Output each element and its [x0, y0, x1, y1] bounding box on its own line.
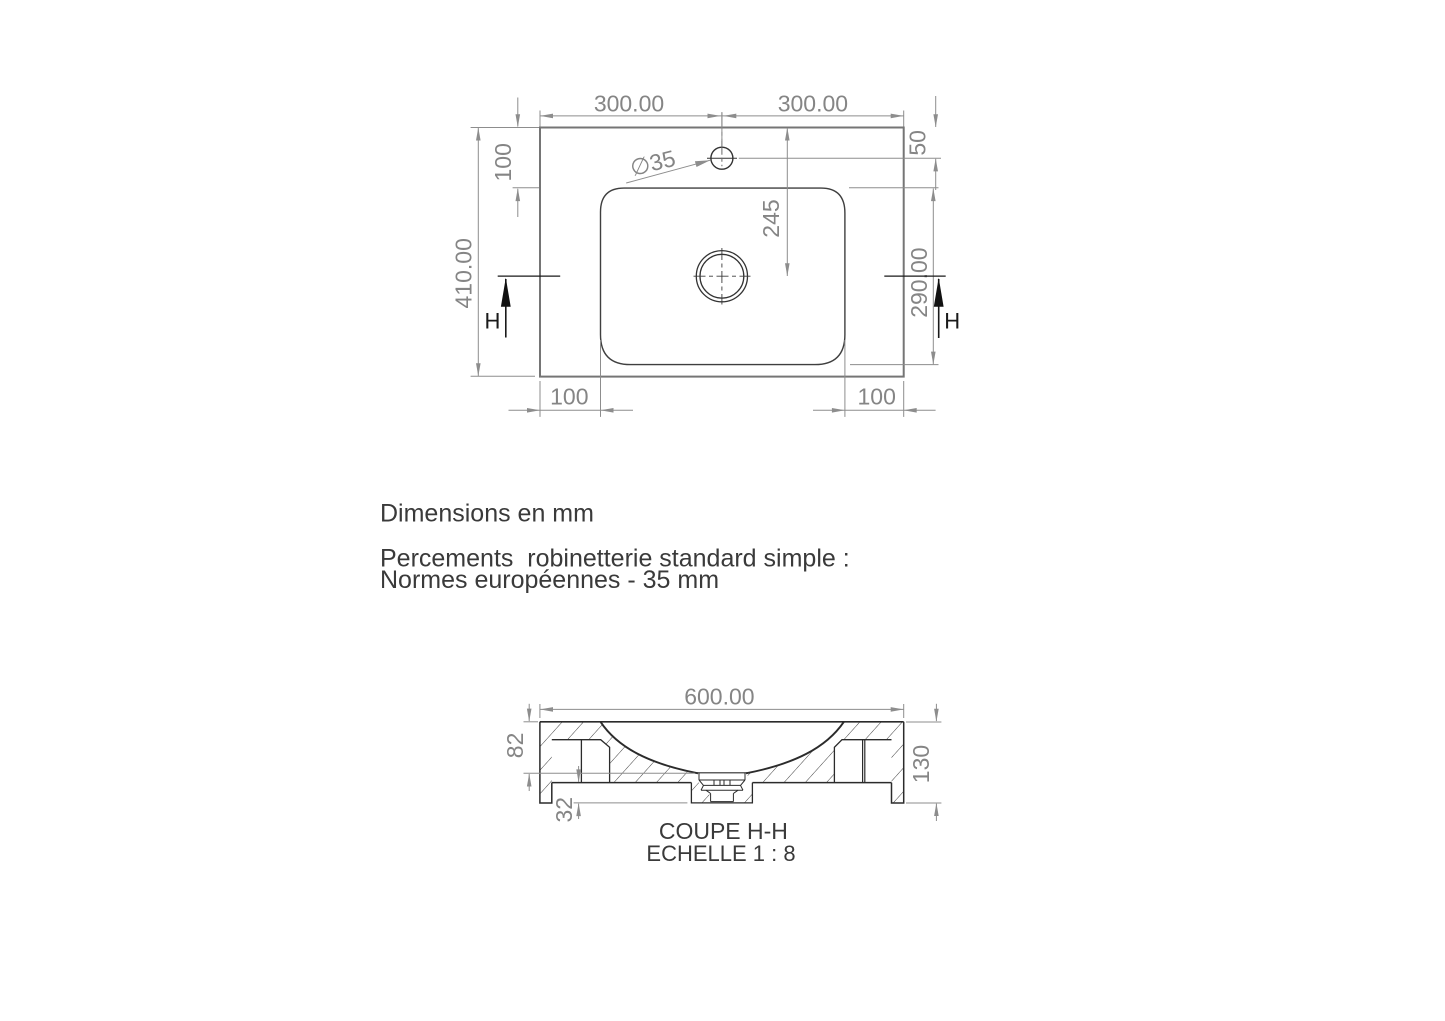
- svg-text:245: 245: [758, 199, 784, 237]
- svg-text:100: 100: [550, 384, 588, 410]
- svg-text:130: 130: [908, 745, 934, 783]
- svg-text:H: H: [944, 309, 960, 334]
- svg-text:Dimensions en mm: Dimensions en mm: [380, 500, 594, 528]
- svg-text:ECHELLE 1 : 8: ECHELLE 1 : 8: [646, 841, 795, 866]
- svg-text:300.00: 300.00: [778, 91, 848, 117]
- svg-text:∅35: ∅35: [627, 145, 678, 181]
- svg-text:50: 50: [904, 130, 930, 156]
- svg-text:82: 82: [502, 733, 528, 759]
- svg-text:410.00: 410.00: [450, 238, 476, 308]
- svg-text:300.00: 300.00: [594, 91, 664, 117]
- svg-text:100: 100: [858, 384, 896, 410]
- svg-text:H: H: [484, 309, 500, 334]
- svg-text:290.00: 290.00: [906, 247, 932, 317]
- svg-text:100: 100: [490, 143, 516, 181]
- svg-text:32: 32: [551, 797, 577, 823]
- svg-text:600.00: 600.00: [684, 684, 754, 710]
- svg-text:Normes européennes - 35 mm: Normes européennes - 35 mm: [380, 566, 719, 594]
